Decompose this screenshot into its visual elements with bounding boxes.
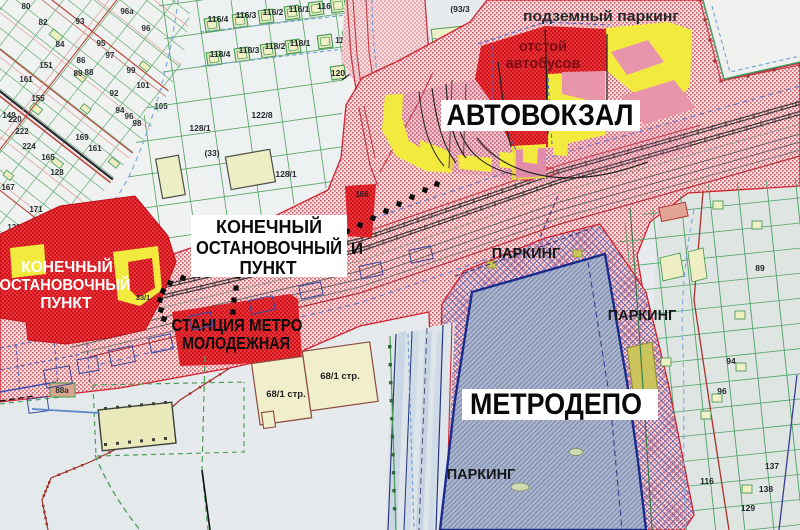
svg-text:автобусов: автобусов [506, 56, 581, 72]
svg-text:95: 95 [97, 39, 106, 48]
svg-text:161: 161 [88, 144, 102, 153]
svg-text:161: 161 [19, 75, 33, 84]
svg-text:МЕТРОДЕПО: МЕТРОДЕПО [470, 388, 642, 421]
svg-text:118/4: 118/4 [210, 49, 231, 59]
svg-text:129: 129 [741, 503, 755, 513]
svg-text:128: 128 [50, 168, 64, 177]
svg-text:84: 84 [56, 40, 65, 49]
svg-text:165: 165 [41, 153, 55, 162]
svg-text:120: 120 [331, 68, 345, 78]
svg-text:116/1: 116/1 [289, 4, 310, 14]
svg-text:151: 151 [39, 61, 53, 70]
svg-text:подземный паркинг: подземный паркинг [523, 9, 679, 25]
svg-text:ПАРКИНГ: ПАРКИНГ [608, 308, 677, 324]
svg-text:КОНЕЧНЫЙ: КОНЕЧНЫЙ [216, 216, 322, 237]
svg-text:88: 88 [85, 68, 94, 77]
svg-text:171: 171 [29, 205, 43, 214]
svg-text:137: 137 [765, 461, 779, 471]
svg-text:68/1 стр.: 68/1 стр. [320, 371, 360, 382]
svg-text:224: 224 [22, 142, 36, 151]
svg-text:(33): (33) [204, 148, 219, 158]
svg-text:94: 94 [726, 356, 736, 366]
svg-text:149: 149 [2, 111, 16, 120]
svg-text:128/1: 128/1 [275, 169, 297, 179]
svg-text:93: 93 [76, 17, 85, 26]
svg-text:ОСТАНОВОЧНЫЙ: ОСТАНОВОЧНЫЙ [196, 237, 342, 258]
svg-text:89: 89 [74, 69, 83, 78]
svg-text:96: 96 [142, 24, 151, 33]
svg-text:33/1: 33/1 [136, 293, 151, 302]
svg-text:88а: 88а [55, 386, 69, 395]
svg-text:80: 80 [22, 2, 31, 11]
svg-text:222: 222 [15, 127, 29, 136]
svg-text:118/3: 118/3 [239, 45, 260, 55]
svg-text:118/2: 118/2 [265, 41, 286, 51]
svg-text:167: 167 [1, 183, 15, 192]
svg-text:116: 116 [317, 1, 331, 11]
svg-text:116/3: 116/3 [236, 10, 257, 20]
svg-text:138: 138 [759, 484, 773, 494]
svg-text:99: 99 [127, 66, 136, 75]
svg-text:ПАРКИНГ: ПАРКИНГ [447, 467, 516, 483]
svg-text:ПАРКИНГ: ПАРКИНГ [492, 246, 561, 262]
svg-text:116/2: 116/2 [263, 7, 284, 17]
svg-text:ПУНКТ: ПУНКТ [40, 295, 92, 312]
svg-text:И: И [351, 239, 363, 258]
svg-text:96а: 96а [120, 7, 134, 16]
svg-text:МОЛОДЕЖНАЯ: МОЛОДЕЖНАЯ [182, 333, 290, 353]
svg-text:(93/3: (93/3 [450, 4, 470, 14]
svg-text:98: 98 [133, 119, 142, 128]
svg-text:КОНЕЧНЫЙ: КОНЕЧНЫЙ [21, 258, 112, 276]
svg-text:122/8: 122/8 [251, 110, 273, 120]
svg-text:АВТОВОКЗАЛ: АВТОВОКЗАЛ [447, 99, 634, 132]
svg-text:ОСТАНОВОЧНЫЙ: ОСТАНОВОЧНЫЙ [0, 276, 131, 294]
svg-text:92: 92 [110, 89, 119, 98]
svg-text:101: 101 [136, 81, 150, 90]
svg-text:89: 89 [755, 263, 765, 273]
svg-text:169: 169 [75, 133, 89, 142]
svg-text:128/1: 128/1 [189, 123, 211, 133]
svg-text:97: 97 [106, 51, 115, 60]
svg-text:82: 82 [39, 18, 48, 27]
svg-text:86: 86 [77, 56, 86, 65]
svg-text:118/1: 118/1 [290, 38, 311, 48]
svg-text:68/1 стр.: 68/1 стр. [266, 389, 306, 400]
svg-text:СТАНЦИЯ МЕТРО: СТАНЦИЯ МЕТРО [172, 315, 303, 335]
svg-text:отстой: отстой [519, 39, 567, 55]
svg-text:155: 155 [31, 94, 45, 103]
svg-text:116: 116 [700, 476, 714, 486]
svg-text:116/4: 116/4 [208, 14, 229, 24]
svg-text:ПУНКТ: ПУНКТ [240, 258, 297, 278]
svg-text:166: 166 [355, 190, 369, 199]
